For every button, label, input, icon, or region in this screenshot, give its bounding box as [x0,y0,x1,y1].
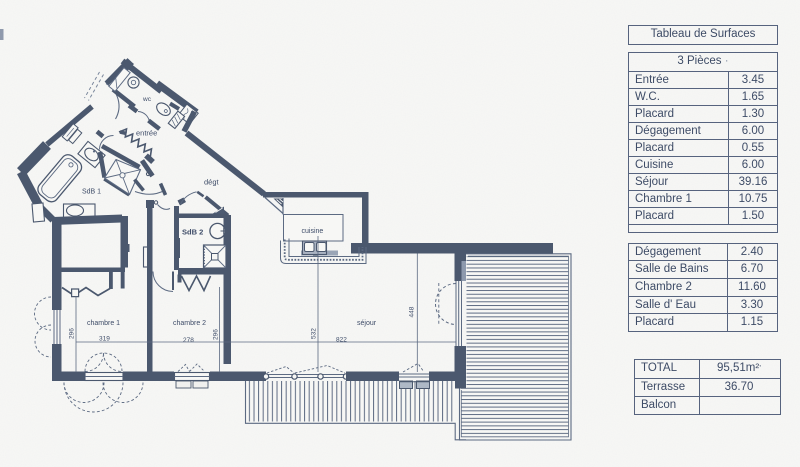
svg-text:296: 296 [69,328,76,339]
svg-text:448: 448 [409,306,416,317]
svg-text:dégt: dégt [204,178,220,187]
svg-text:entrée: entrée [136,129,157,138]
svg-text:296: 296 [213,329,220,340]
svg-text:chambre 1: chambre 1 [87,320,120,327]
svg-text:319: 319 [99,336,110,343]
svg-text:278: 278 [183,337,194,344]
svg-text:822: 822 [336,337,347,344]
svg-text:chambre 2: chambre 2 [173,320,206,327]
svg-text:532: 532 [311,328,318,339]
svg-text:SdB 2: SdB 2 [182,228,203,237]
svg-text:SdB 1: SdB 1 [82,189,101,196]
svg-text:wc: wc [142,96,152,103]
svg-text:cuisine: cuisine [302,228,324,235]
svg-text:séjour: séjour [357,320,377,327]
